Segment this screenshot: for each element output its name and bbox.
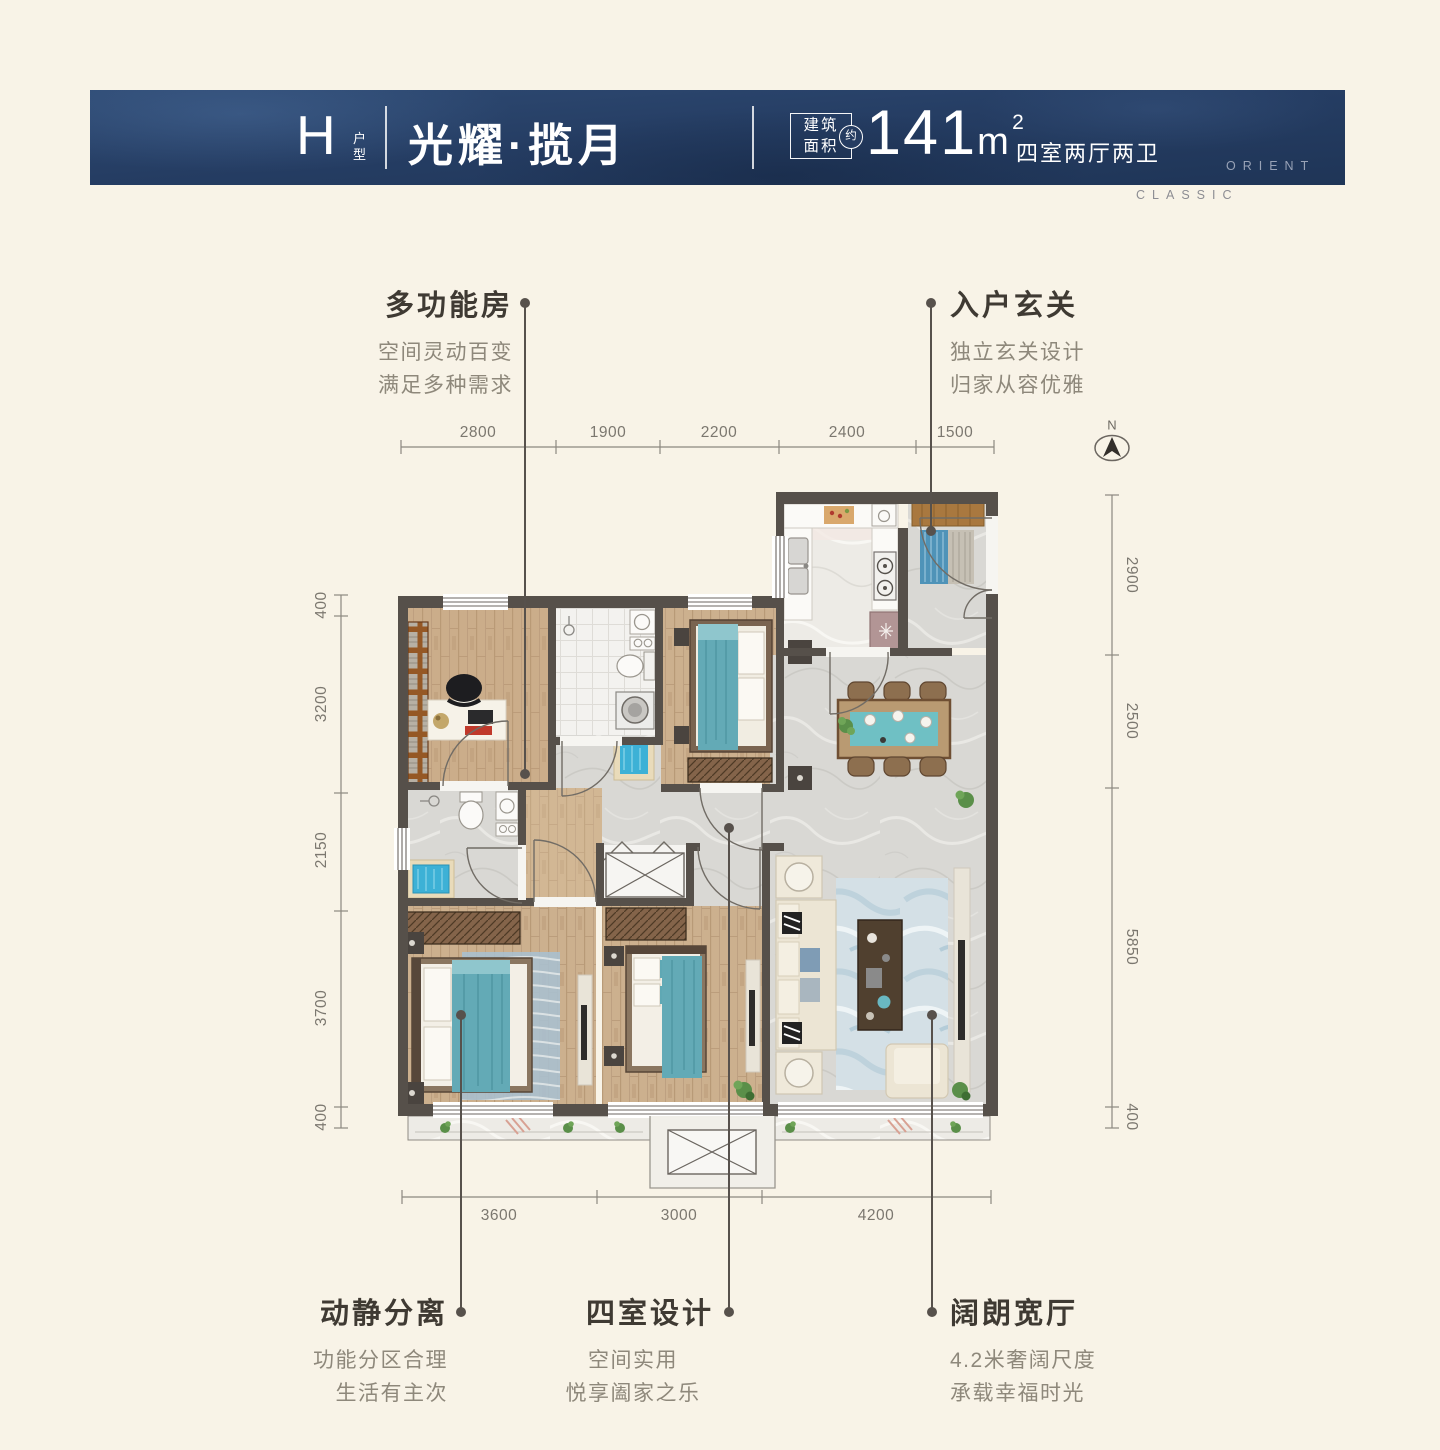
closet-box [606, 853, 684, 897]
north-compass-icon [1095, 436, 1129, 461]
elevator-shaft [650, 1116, 775, 1188]
floor-plan-svg [0, 0, 1440, 1450]
floorplan-page: { "colors": { "background": "#f8f3e7", "… [0, 0, 1440, 1450]
entry-foyer-items [912, 503, 984, 584]
